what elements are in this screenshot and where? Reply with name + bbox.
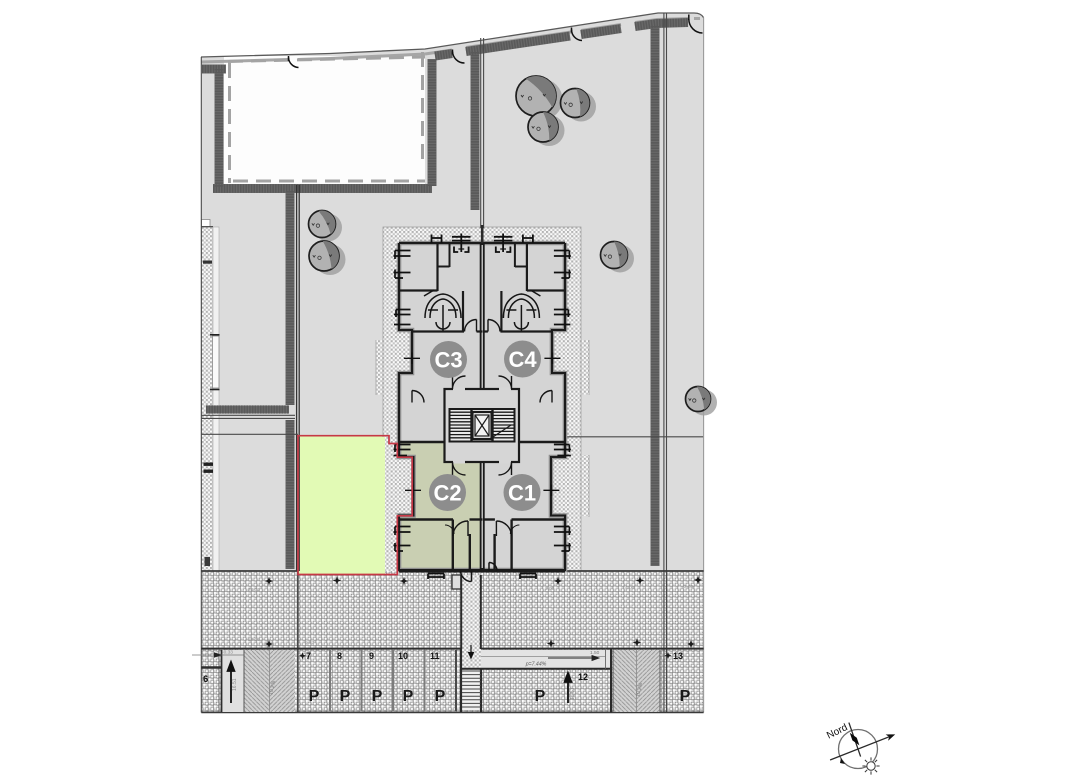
svg-text:P: P	[680, 688, 691, 705]
svg-text:11: 11	[430, 651, 440, 661]
svg-text:P: P	[403, 688, 414, 705]
svg-text:P: P	[340, 688, 351, 705]
svg-text:2.60: 2.60	[684, 584, 694, 590]
svg-text:C4: C4	[508, 347, 537, 372]
svg-text:p=7.44%: p=7.44%	[525, 662, 547, 668]
svg-text:6: 6	[203, 674, 208, 685]
svg-text:P: P	[372, 688, 383, 705]
svg-text:9: 9	[369, 651, 374, 661]
svg-text:Nord: Nord	[825, 722, 849, 741]
svg-text:P: P	[435, 688, 446, 705]
svg-text:7: 7	[306, 651, 311, 661]
svg-text:P: P	[309, 688, 320, 705]
svg-text:12: 12	[578, 672, 588, 682]
svg-text:20.02: 20.02	[248, 637, 260, 643]
svg-text:2.00: 2.00	[545, 586, 555, 592]
svg-text:C3: C3	[434, 348, 462, 373]
svg-text:C2: C2	[433, 481, 461, 506]
svg-text:13: 13	[673, 651, 683, 661]
svg-text:-0.33: -0.33	[222, 650, 233, 656]
svg-text:9.87: 9.87	[305, 640, 315, 646]
svg-text:8: 8	[337, 651, 342, 661]
svg-text:C1: C1	[508, 481, 536, 506]
svg-text:16.51: 16.51	[232, 678, 238, 691]
svg-text:16.51: 16.51	[570, 687, 576, 700]
svg-text:20.02: 20.02	[248, 587, 260, 593]
svg-text:10: 10	[398, 651, 408, 661]
svg-text:4.00: 4.00	[625, 585, 635, 591]
svg-text:P: P	[535, 688, 546, 705]
svg-text:1.50: 1.50	[590, 650, 600, 656]
